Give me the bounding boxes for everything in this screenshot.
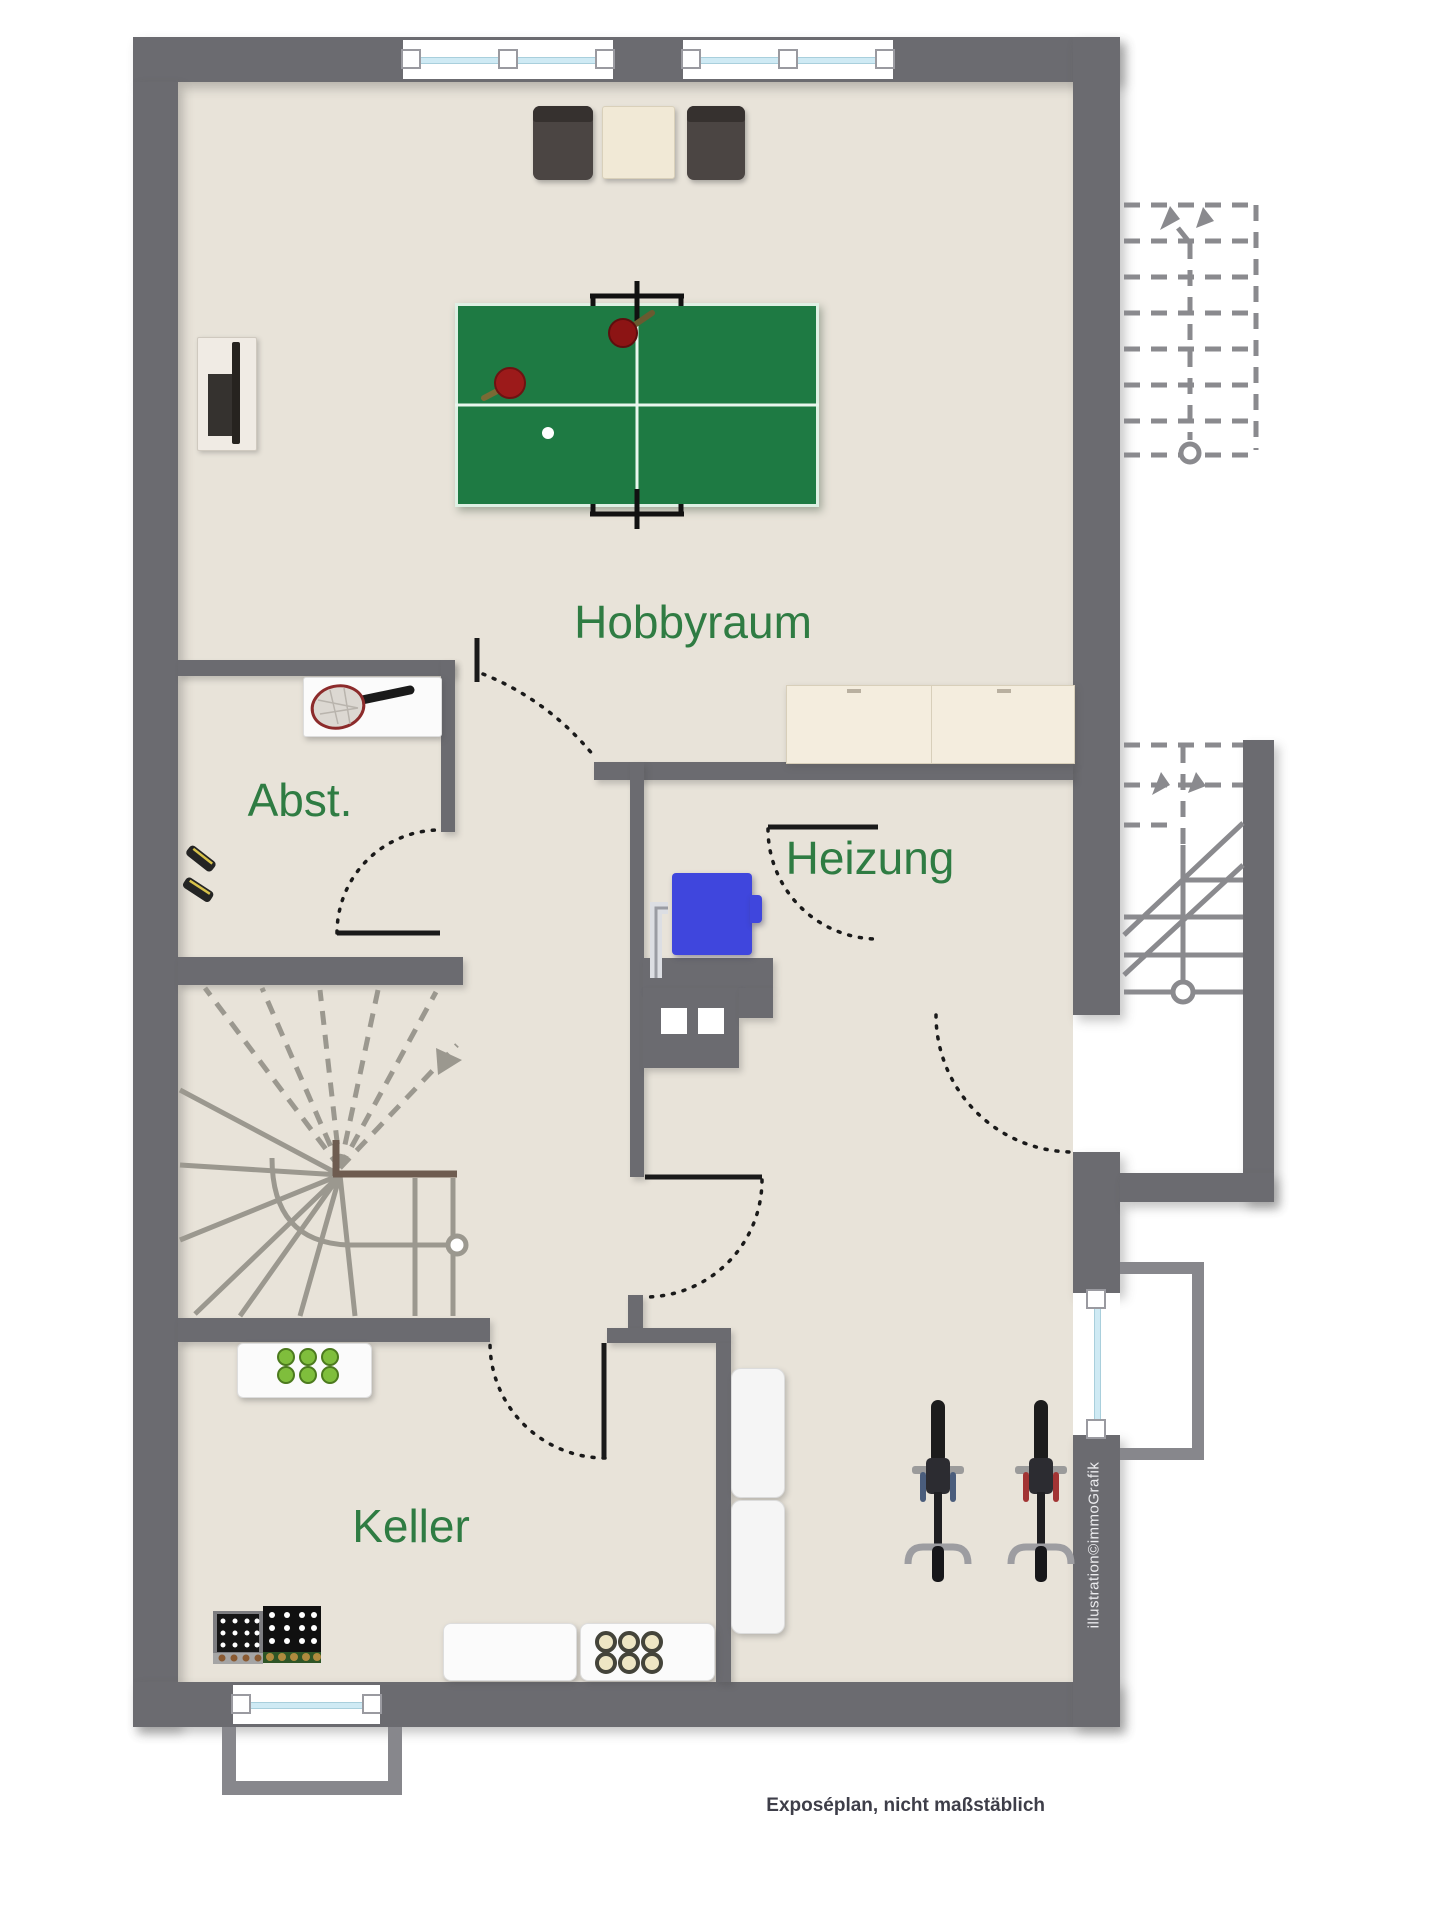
storage-box-lower: [731, 1500, 785, 1634]
storage-shelf-plain: [443, 1623, 577, 1681]
window-frame-square: [498, 49, 518, 69]
window-bottom: [233, 1685, 380, 1724]
wall-top: [133, 37, 1120, 82]
side-table: [602, 106, 675, 179]
window-top-left: [403, 40, 613, 79]
window-frame-square: [778, 49, 798, 69]
wall-abst-right: [441, 660, 455, 832]
room-label-hobbyraum: Hobbyraum: [574, 599, 812, 645]
footer-note: Exposéplan, nicht maßstäblich: [766, 1795, 1045, 1817]
wall-stair-branch: [1120, 1173, 1274, 1202]
chimney-block: [643, 988, 739, 1068]
boiler-connector: [750, 895, 762, 923]
storage-box-upper: [731, 1368, 785, 1498]
window-glass: [235, 1702, 378, 1709]
chimney-flue-1: [661, 1008, 687, 1034]
window-glass: [1094, 1295, 1101, 1433]
lounge-chair-right: [687, 106, 745, 180]
light-well-right-bottom: [1120, 1448, 1204, 1460]
light-well-bottom-bar: [222, 1781, 402, 1795]
room-label-keller: Keller: [352, 1503, 470, 1549]
cabinet-divider: [931, 686, 932, 763]
chimney-flue-2: [698, 1008, 724, 1034]
tv-mount: [208, 374, 234, 436]
wall-stairwell-top: [178, 957, 463, 985]
cabinet-handle: [847, 689, 861, 693]
wall-right-upper: [1073, 37, 1120, 1015]
window-frame-square: [401, 49, 421, 69]
window-frame-square: [681, 49, 701, 69]
staircase-right: [1124, 745, 1243, 1002]
cabinet-handle: [997, 689, 1011, 693]
window-frame-square: [1086, 1289, 1106, 1309]
chimney-bar: [643, 958, 773, 988]
wall-stair-right: [1243, 740, 1274, 1202]
storage-shelf-bottles: [580, 1623, 715, 1681]
window-frame-square: [875, 49, 895, 69]
illustration-credit: illustration©immoGrafik: [1086, 1462, 1103, 1629]
staircase-upper-dashed: [1124, 205, 1256, 462]
wall-hall-stub: [628, 1295, 643, 1328]
wall-right-middle: [1073, 1152, 1120, 1293]
sideboard-cabinet: [786, 685, 1075, 764]
tv-screen: [232, 342, 240, 444]
chair-backrest: [687, 106, 745, 122]
chair-backrest: [533, 106, 593, 122]
table-tennis-table: [455, 303, 819, 507]
window-right: [1073, 1293, 1120, 1435]
room-label-heizung: Heizung: [786, 835, 955, 881]
wall-heizung-top: [594, 762, 1073, 780]
window-frame-square: [362, 1694, 382, 1714]
wall-keller-right: [716, 1343, 731, 1682]
light-well-right-side: [1192, 1262, 1204, 1460]
chimney-notch: [739, 988, 773, 1018]
window-frame-square: [1086, 1419, 1106, 1439]
wall-keller-top: [178, 1318, 490, 1342]
racket-shelf: [303, 677, 442, 737]
wall-hall-vertical: [630, 762, 644, 1177]
floor-plan-canvas: Hobbyraum Abst. Heizung Keller Exposépla…: [0, 0, 1441, 1920]
window-top-right: [683, 40, 893, 79]
bottle-shelf: [237, 1343, 372, 1398]
heating-boiler: [672, 873, 752, 955]
room-label-abstellraum: Abst.: [248, 777, 353, 823]
lounge-chair-left: [533, 106, 593, 180]
window-frame-square: [595, 49, 615, 69]
window-frame-square: [231, 1694, 251, 1714]
wall-abst-top: [178, 660, 455, 676]
wall-keller-right-top: [607, 1328, 731, 1343]
wall-left: [133, 82, 178, 1727]
